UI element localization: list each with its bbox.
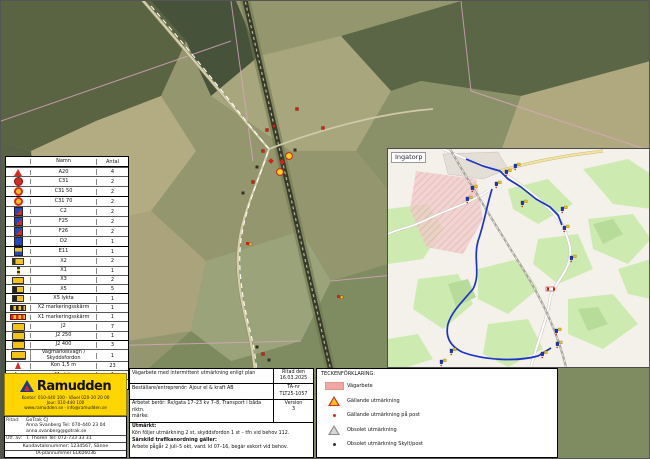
drawn-label: Ritad:	[6, 418, 26, 435]
legend-device-name: X2	[30, 259, 96, 264]
work-description: Vägarbete med intermittent utmärkning en…	[130, 369, 273, 383]
aerial-sign-marker	[296, 108, 299, 111]
rect-darkyel-icon	[12, 286, 24, 293]
legend-row: X2 markeringsskärm1	[6, 303, 128, 312]
legend-device-qty: 1	[96, 296, 128, 302]
bar-red-icon	[10, 314, 26, 320]
legend-device-qty: 1	[96, 314, 128, 320]
legend-row: C31 702	[6, 196, 128, 206]
symbol-legend-title: TECKENFÖRKLARING:	[321, 371, 553, 377]
legend-device-qty: 2	[96, 199, 128, 205]
legend-header-row: Namn Antal	[6, 157, 128, 167]
legend-row: X32	[6, 275, 128, 284]
note-line-1: Kön följer utmärkning 2 st, skyddsfordon…	[132, 431, 311, 438]
sq-bluered-icon	[14, 207, 23, 216]
legend-row: F252	[6, 216, 128, 226]
symbol-legend-item: Obsolet utmärkning Skylt/post	[321, 437, 553, 452]
legend-rows: A204C312C31 502C31 702C22F252F262D21E111…	[6, 167, 128, 389]
gray-tri-icon	[328, 425, 340, 435]
dot-red-icon	[333, 414, 336, 417]
legend-row: J27	[6, 321, 128, 330]
legend-device-name: X1	[30, 268, 96, 273]
customer-agreement-row: Kundavtalsnummer: 1234567, Sänne	[5, 442, 126, 450]
sq-bluered-icon	[14, 217, 23, 226]
ta-nr-value: TLT25-1057	[274, 392, 313, 398]
aerial-sign-marker	[252, 181, 255, 184]
tri-warn-icon	[14, 169, 22, 176]
sign-yel-icon	[12, 323, 25, 331]
legend-row: D21	[6, 236, 128, 246]
circ-speed-icon	[14, 197, 23, 206]
title-block: Vägarbete med intermittent utmärkning en…	[129, 368, 314, 458]
legend-device-name: J2	[30, 324, 96, 329]
symbol-legend: TECKENFÖRKLARING: VägarbeteGällande utmä…	[316, 368, 558, 458]
legend-row: X5 lykta1	[6, 293, 128, 302]
legend-device-name: C2	[30, 209, 96, 214]
legend-row: C22	[6, 206, 128, 216]
inset-place-label: Ingatorp	[391, 152, 426, 163]
legend-device-name: A20	[30, 170, 96, 175]
legend-device-name: X2 markeringsskärm	[30, 305, 96, 310]
symbol-legend-item: Obsolet utmärkning	[321, 423, 553, 438]
legend-device-qty: 1	[96, 268, 128, 274]
legend-device-qty: 1	[96, 333, 128, 339]
legend-device-qty: 1	[96, 353, 128, 359]
sign-yel-icon	[12, 341, 25, 349]
legend-device-qty: 1	[96, 305, 128, 311]
legend-device-name: F25	[30, 219, 96, 224]
aerial-sign-marker	[322, 127, 325, 130]
circ-speed-icon	[14, 187, 23, 196]
rect-arrow-icon	[12, 258, 24, 265]
legend-row: J2 4003	[6, 340, 128, 349]
brand-addr-3: www.ramudden.se · info@ramudden.se	[22, 405, 110, 410]
aerial-sign-marker	[277, 169, 284, 176]
brand-block: Ramudden Kontor: 010-440 100 · Växel 020…	[4, 373, 127, 458]
aerial-sign-marker	[286, 153, 293, 160]
author-row-drawn: Ritad: GoTrak CJ Anna Svanberg Tel: 070-…	[5, 416, 126, 435]
legend-device-name: X3	[30, 277, 96, 282]
symbol-rows: VägarbeteGällande utmärkningGällande utm…	[321, 379, 553, 452]
legend-device-name: X5	[30, 287, 96, 292]
legend-device-name: J2 400	[30, 342, 96, 347]
legend-device-qty: 1	[96, 239, 128, 245]
aerial-sign-marker	[266, 129, 269, 132]
symbol-label: Gällande utmärkning på post	[347, 412, 553, 418]
legend-device-name: C31 50	[30, 189, 96, 194]
legend-device-qty: 2	[96, 189, 128, 195]
trailer-icon	[11, 351, 26, 360]
legend-device-qty: 2	[96, 219, 128, 225]
legend-device-name: F26	[30, 229, 96, 234]
sq-blue-icon	[14, 237, 23, 246]
symbol-legend-item: Gällande utmärkning	[321, 394, 553, 409]
legend-device-name: J2 250	[30, 333, 96, 338]
overview-inset-map: Ingatorp	[387, 148, 650, 368]
ta-plan-number-row: TA-plannummer ELK0603b	[5, 450, 126, 458]
legend-row: X11	[6, 266, 128, 275]
legend-device-name: Kon 1,5 m	[30, 363, 96, 368]
road-info-line2: märke:	[132, 414, 271, 420]
legend-row: C31 502	[6, 186, 128, 196]
title-row-1: Vägarbete med intermittent utmärkning en…	[130, 369, 313, 384]
legend-row: X22	[6, 256, 128, 265]
aerial-sign-marker	[268, 359, 271, 362]
legend-device-name: X5 lykta	[30, 296, 96, 301]
symbol-label: Obsolet utmärkning	[347, 427, 553, 433]
aerial-sign-marker	[256, 346, 259, 349]
author-rows: Ritad: GoTrak CJ Anna Svanberg Tel: 070-…	[4, 416, 127, 458]
inset-map-svg	[388, 149, 650, 367]
legend-device-name: X1 markeringsskärm	[30, 315, 96, 320]
legend-row: A204	[6, 167, 128, 176]
legend-device-qty: 7	[96, 324, 128, 330]
title-row-3: Arbetet berör: Rv/gata 17–23 kv 7–8, Tra…	[130, 400, 313, 423]
bar-dark-icon	[10, 305, 26, 311]
version-value: 3	[274, 407, 313, 413]
legend-device-name: Vägmärkesvagn / Skyddsfordon	[30, 350, 96, 361]
legend-row: X55	[6, 284, 128, 293]
rect-darkyel-icon	[12, 295, 24, 302]
aerial-sign-marker	[294, 149, 297, 152]
legend-device-qty: 4	[96, 169, 128, 175]
legend-device-qty: 23	[96, 363, 128, 369]
legend-row: Kon 1,5 m23	[6, 361, 128, 370]
ta-plan-sheet: Namn Antal A204C312C31 502C31 702C22F252…	[0, 0, 650, 459]
legend-device-name: C31	[30, 179, 96, 184]
issued-person: T. Thoren Tel: 072-733 33 31	[26, 436, 125, 442]
road-info-line1: Arbetet berör: Rv/gata 17–23 kv 7–8, Tra…	[132, 401, 271, 413]
aerial-sign-marker	[273, 125, 276, 128]
legend-device-qty: 1	[96, 249, 128, 255]
pole-icon	[17, 267, 20, 275]
author-row-issued: Utf. av: T. Thoren Tel: 072-733 33 31	[5, 435, 126, 443]
device-legend-table: Namn Antal A204C312C31 502C31 702C22F252…	[5, 156, 129, 390]
note-line-3: Arbete pågår 2 juli–5 okt, vard. kl 07–1…	[132, 445, 311, 452]
inset-sign-marker	[546, 287, 555, 291]
title-row-2: Beställare/entreprenör: Ajour el & kraft…	[130, 384, 313, 399]
legend-device-qty: 2	[96, 209, 128, 215]
legend-header-name: Namn	[30, 159, 96, 164]
aerial-sign-marker	[256, 166, 259, 169]
issued-label: Utf. av:	[6, 436, 26, 442]
legend-device-name: D2	[30, 239, 96, 244]
ramudden-triangle-icon	[20, 380, 34, 392]
date-value: 16.03.2025	[274, 376, 313, 382]
aerial-sign-marker	[262, 150, 265, 153]
legend-row: C312	[6, 176, 128, 186]
legend-device-qty: 2	[96, 179, 128, 185]
rect-yellow-icon	[12, 277, 24, 284]
legend-row: F262	[6, 226, 128, 236]
symbol-legend-item: Gällande utmärkning på post	[321, 408, 553, 423]
dot-dark-icon	[333, 443, 336, 446]
area-pink-icon	[325, 382, 344, 390]
warn-tri-icon	[328, 396, 340, 406]
symbol-label: Vägarbete	[347, 383, 553, 389]
circ-red-icon	[14, 177, 23, 186]
aerial-sign-marker	[242, 192, 245, 195]
legend-device-qty: 5	[96, 286, 128, 292]
symbol-legend-item: Vägarbete	[321, 379, 553, 394]
legend-device-qty: 2	[96, 229, 128, 235]
legend-header-qty: Antal	[96, 159, 128, 165]
brand-name: Ramudden	[37, 379, 111, 394]
client-text: Beställare/entreprenör: Ajour el & kraft…	[130, 384, 273, 398]
symbol-label: Obsolet utmärkning Skylt/post	[347, 441, 553, 447]
sq-yelblue-icon	[14, 247, 23, 256]
title-notes: Utmärkt: Kön följer utmärkning 2 st, sky…	[130, 423, 313, 454]
legend-row: Vägmärkesvagn / Skyddsfordon1	[6, 349, 128, 361]
cone-icon	[15, 362, 21, 369]
legend-device-qty: 3	[96, 342, 128, 348]
legend-row: X1 markeringsskärm1	[6, 312, 128, 321]
legend-device-qty: 2	[96, 277, 128, 283]
note-line-2: Särskild trafikanordning gäller:	[132, 438, 311, 445]
legend-device-qty: 2	[96, 258, 128, 264]
legend-device-name: E11	[30, 249, 96, 254]
ramudden-logo: Ramudden Kontor: 010-440 100 · Växel 020…	[4, 373, 127, 416]
sign-yel-icon	[12, 332, 25, 340]
aerial-sign-marker	[262, 353, 265, 356]
drawn-email: anna.svanberg@gotrak.se	[26, 429, 125, 435]
legend-device-name: C31 70	[30, 199, 96, 204]
legend-row: J2 2501	[6, 331, 128, 340]
sq-bluered-icon	[14, 227, 23, 236]
symbol-label: Gällande utmärkning	[347, 398, 553, 404]
legend-row: E111	[6, 246, 128, 256]
